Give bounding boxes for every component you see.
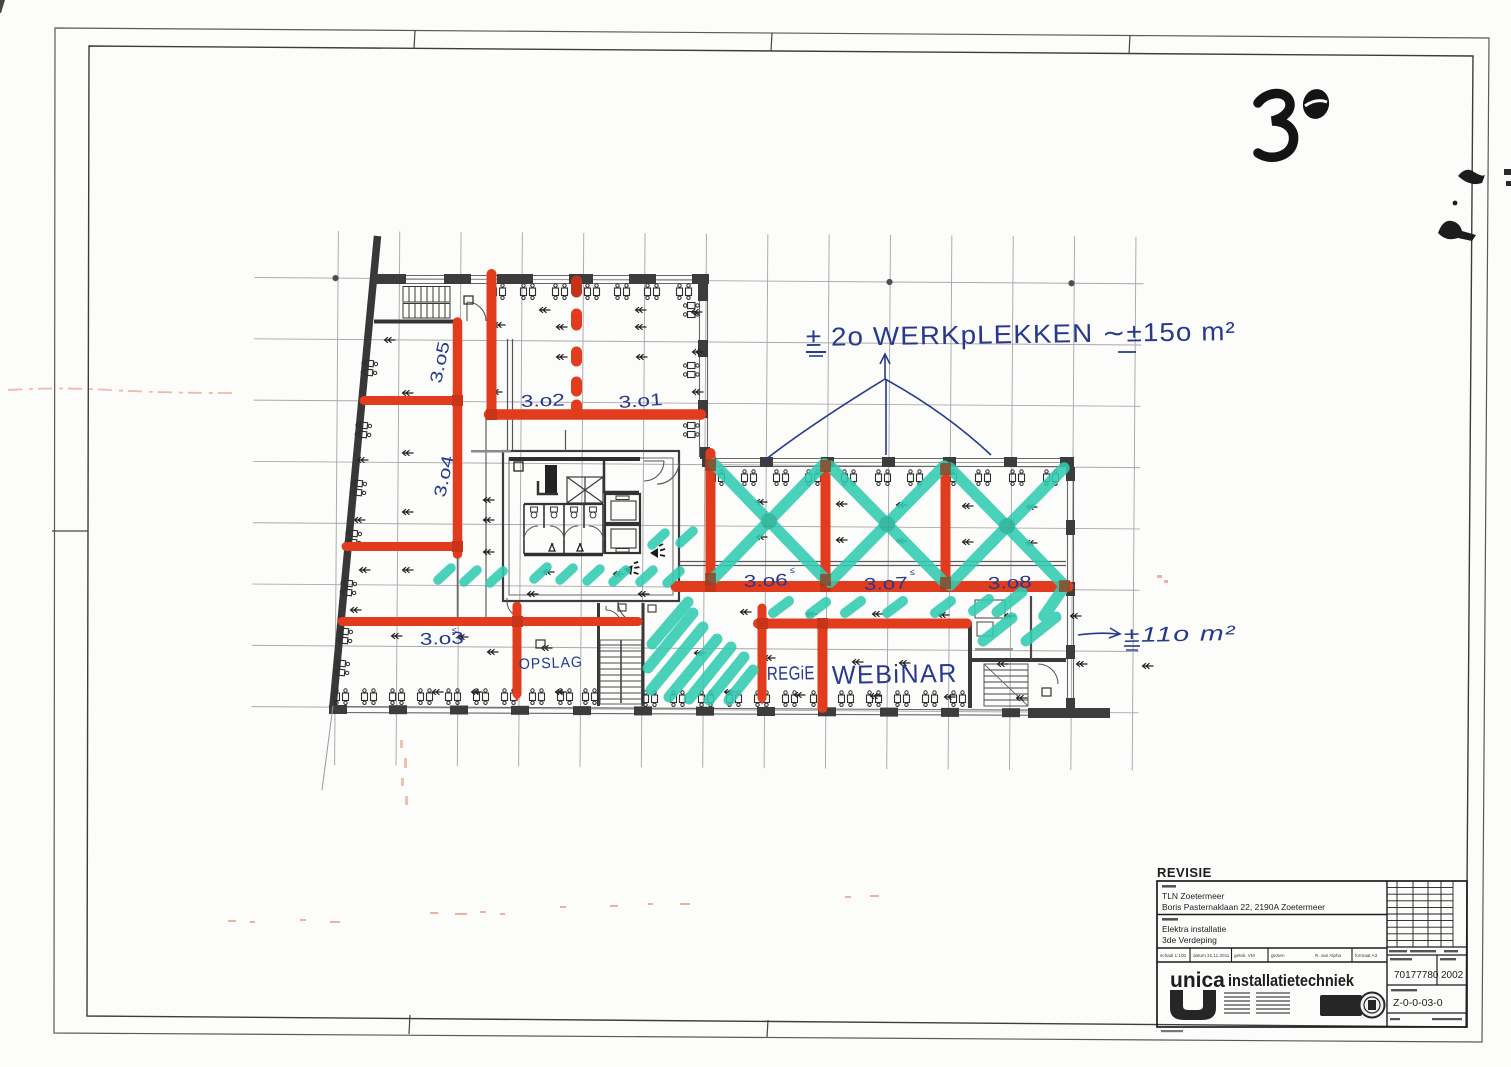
svg-text:formaat A3: formaat A3	[1355, 953, 1378, 958]
svg-text:getek. VM: getek. VM	[1234, 953, 1255, 958]
svg-text:≤: ≤	[910, 567, 915, 577]
svg-text:REGiE: REGiE	[767, 663, 815, 685]
svg-text:3.o8: 3.o8	[987, 572, 1032, 593]
svg-text:3.o6: 3.o6	[743, 570, 788, 591]
svg-text:± 2o WERKpLEKKEN ∼±15o m²: ± 2o WERKpLEKKEN ∼±15o m²	[806, 316, 1236, 352]
svg-text:3.o7: 3.o7	[863, 573, 908, 594]
svg-text:Boris Pasternaklaan 22, 2190A: Boris Pasternaklaan 22, 2190A Zoetermeer	[1162, 902, 1325, 912]
svg-text:3.o1: 3.o1	[618, 390, 663, 412]
svg-text:installatietechniek: installatietechniek	[1228, 972, 1355, 990]
svg-text:gezien: gezien	[1271, 953, 1285, 958]
svg-text:OPSLAG: OPSLAG	[519, 654, 584, 673]
svg-text:WEBiNAR: WEBiNAR	[832, 658, 959, 690]
svg-text:3de Verdeping: 3de Verdeping	[1162, 935, 1217, 945]
svg-text:Elektra installatie: Elektra installatie	[1162, 924, 1227, 934]
svg-text:≤: ≤	[452, 625, 457, 635]
svg-text:3.o3: 3.o3	[419, 628, 464, 649]
svg-text:±11o m²: ±11o m²	[1124, 622, 1236, 647]
svg-text:R. van Alpha: R. van Alpha	[1315, 953, 1341, 958]
svg-text:70177780: 70177780	[1394, 970, 1439, 981]
svg-text:TLN Zoetermeer: TLN Zoetermeer	[1162, 891, 1225, 901]
svg-text:2002: 2002	[1441, 970, 1464, 981]
svg-text:unica: unica	[1170, 969, 1225, 992]
svg-text:Z-0-0-03-0: Z-0-0-03-0	[1393, 997, 1443, 1009]
svg-text:schaal 1:100: schaal 1:100	[1160, 953, 1186, 958]
svg-text:3.o2: 3.o2	[520, 390, 565, 411]
svg-text:≤: ≤	[790, 565, 795, 575]
svg-text:datum 31.11.2011: datum 31.11.2011	[1193, 953, 1230, 958]
svg-text:REVISIE: REVISIE	[1157, 865, 1212, 880]
